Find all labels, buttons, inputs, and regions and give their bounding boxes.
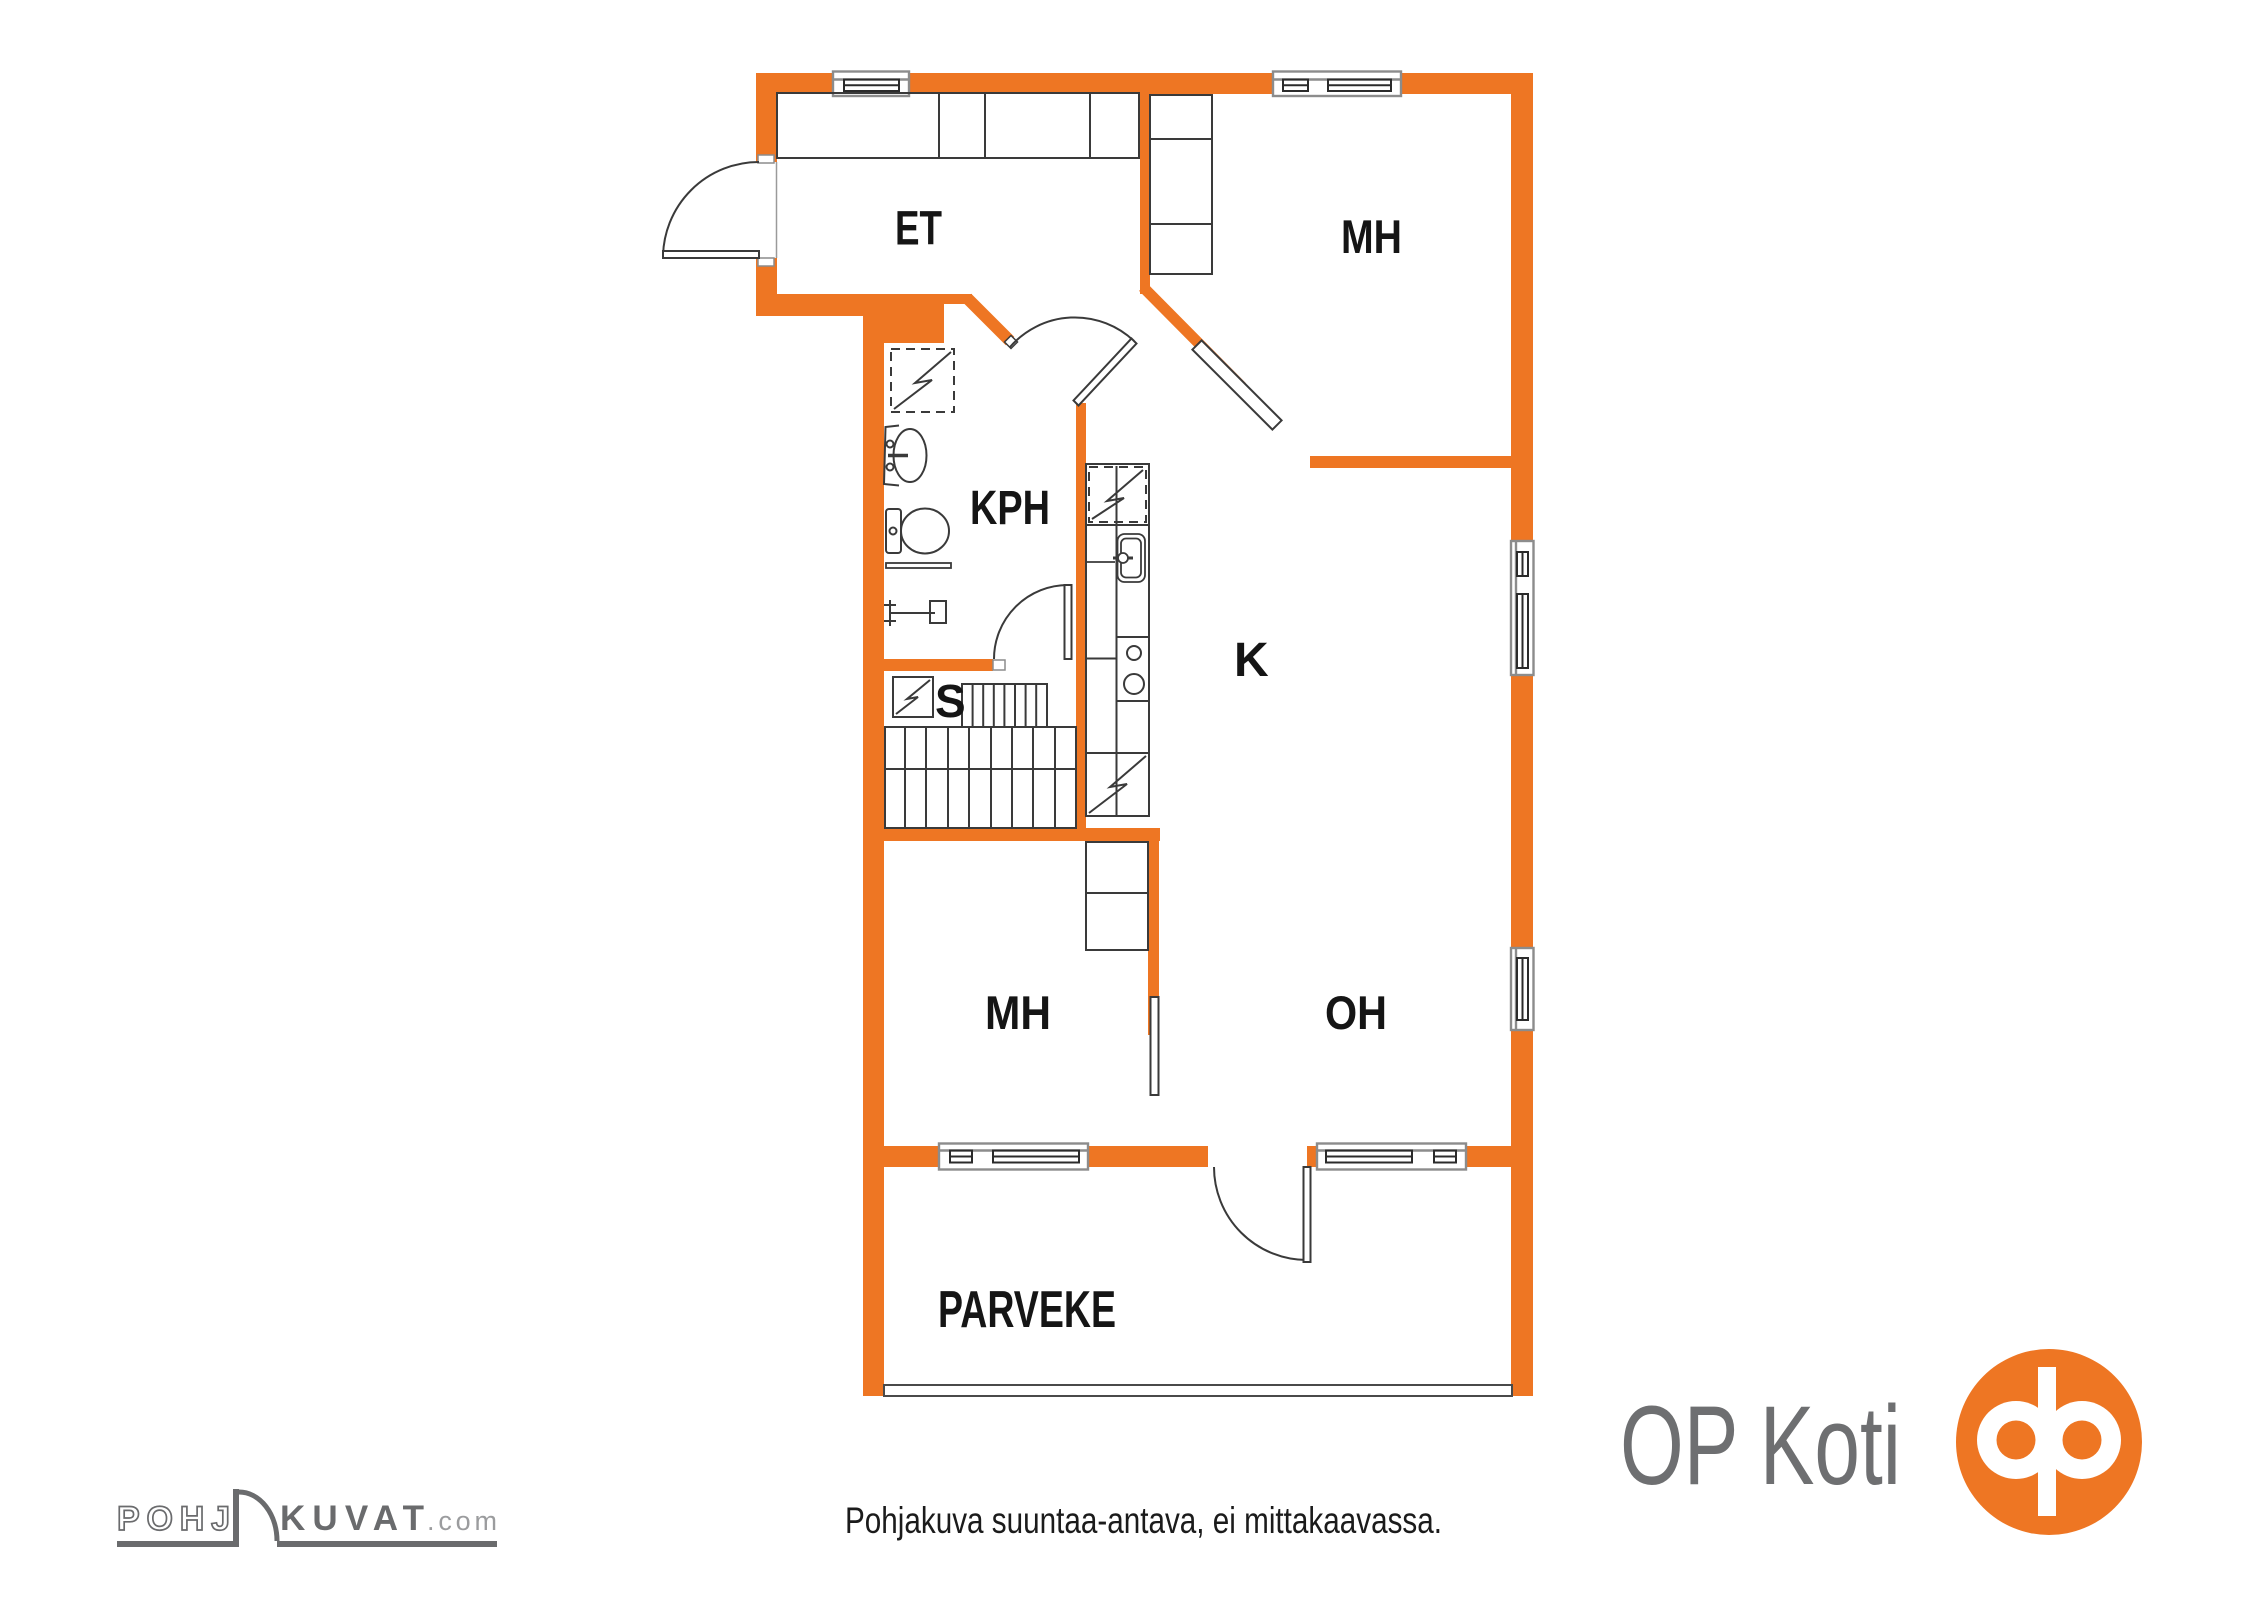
svg-text:MH: MH — [985, 986, 1051, 1039]
svg-text:ET: ET — [895, 203, 942, 256]
svg-text:K: K — [1234, 634, 1269, 687]
svg-text:MH: MH — [1341, 210, 1402, 263]
svg-text:Pohjakuva suuntaa-antava, ei m: Pohjakuva suuntaa-antava, ei mittakaavas… — [845, 1500, 1442, 1541]
svg-text:PARVEKE: PARVEKE — [938, 1281, 1116, 1339]
svg-text:KUVAT: KUVAT — [280, 1499, 424, 1538]
svg-text:OP Koti: OP Koti — [1620, 1383, 1901, 1508]
svg-text:S: S — [935, 675, 966, 727]
svg-text:KPH: KPH — [970, 482, 1050, 535]
svg-text:OH: OH — [1325, 986, 1387, 1039]
svg-text:.com: .com — [427, 1506, 497, 1536]
